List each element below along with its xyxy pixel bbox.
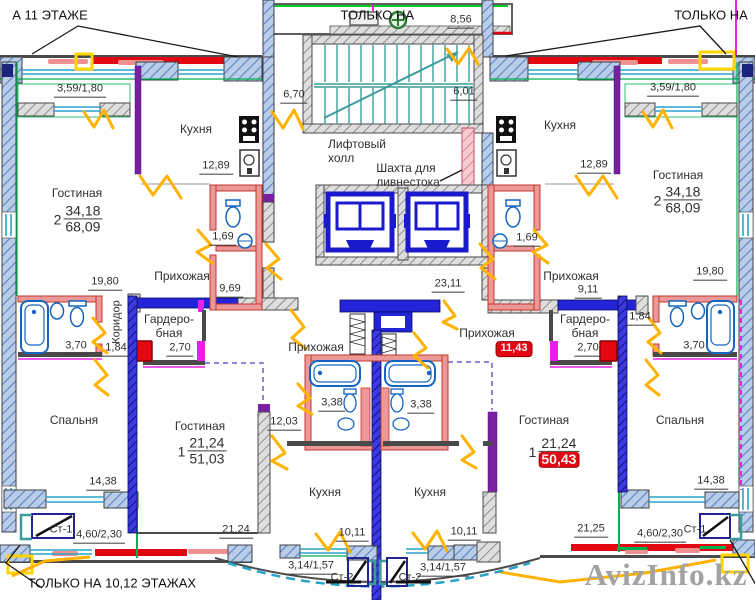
floor-plan: А 11 ЭТАЖЕ ТОЛЬКО НАТОЛЬКО НА 3,59/1,80 …	[0, 0, 755, 600]
toilet-icon	[226, 200, 240, 227]
room-label-wardrobe-l: Гардеро-бная	[144, 313, 194, 341]
sink-icon	[338, 418, 354, 430]
room-label-hall-tl: Прихожая	[154, 270, 210, 284]
sink-icon	[51, 303, 64, 319]
dim-living-br: 21,25	[574, 523, 608, 538]
room-label-hall-bl: Прихожая	[288, 341, 344, 355]
toilet-icon	[69, 301, 86, 327]
room-label-kitchen-bl: Кухня	[309, 486, 341, 500]
leader-shaft	[440, 170, 462, 181]
room-label-living-tr: Гостиная	[653, 169, 703, 183]
area-kitchen-tr: 12,89	[577, 159, 611, 174]
riser-label-st2-r: Ст-2	[399, 572, 422, 585]
room-label-wardrobe-r: Гардеро-бная	[560, 313, 610, 341]
riser-label-st1-l: Ст-1	[50, 524, 73, 537]
room-label-living-tl: Гостиная	[52, 187, 102, 201]
sink-icon	[493, 234, 507, 248]
door-arc	[646, 360, 659, 395]
stove-icon	[239, 116, 259, 143]
duct-box	[600, 341, 617, 361]
apartment-summary-bl: 1 21,2451,03	[178, 435, 227, 466]
bathtub-icon	[385, 361, 435, 386]
area-living-room-tl: 19,80	[88, 276, 122, 291]
area-corridor-r: 1,84	[626, 311, 653, 326]
apartment-summary-tr: 2 34,1868,09	[654, 184, 703, 215]
sink-icon	[393, 418, 409, 430]
balcony-area-br: 3,14/1,57	[417, 562, 469, 577]
door-arc	[140, 176, 181, 198]
area-wc-tl: 1,69	[209, 231, 236, 246]
area-corridor-core: 23,11	[432, 278, 465, 293]
area-hall-br-highlight: 11,43	[496, 341, 533, 357]
wc-top-right	[488, 185, 540, 310]
note-top-right: ТОЛЬКО НАТОЛЬКО НА	[334, 9, 755, 24]
room-label-living-bl: Гостиная	[175, 420, 225, 434]
sink-icon	[238, 234, 252, 248]
room-label-bedroom-l: Спальня	[50, 414, 98, 428]
area-wardrobe-l: 2,70	[166, 342, 193, 357]
note-bottom: ТОЛЬКО НА 10,12 ЭТАЖАХ	[28, 577, 196, 592]
leader-top-left	[32, 26, 238, 57]
drain-shaft	[462, 128, 474, 186]
balcony-area-tr: 3,59/1,80	[647, 82, 699, 97]
bathtub-icon	[21, 301, 48, 353]
core-block	[128, 0, 648, 600]
area-wc-tr: 1,69	[513, 232, 540, 247]
kitchen-sink-icon	[240, 150, 259, 176]
radiator-icon	[742, 64, 753, 77]
loggia-area-r: 4,60/2,30	[634, 528, 686, 543]
room-label-corridor-l: Коридор	[111, 300, 124, 343]
room-label-bedroom-r: Спальня	[656, 414, 704, 428]
sink-icon	[692, 303, 705, 319]
stairs-icon	[314, 45, 473, 124]
door-arc	[95, 360, 108, 395]
area-left-lobby: 6,70	[280, 89, 307, 104]
riser-label-st2-l: Ст-2	[331, 572, 354, 585]
area-bedroom-l: 14,38	[86, 476, 120, 491]
area-hall-bl: 12,03	[267, 416, 301, 431]
apartment-summary-tl: 2 34,1868,09	[54, 203, 103, 234]
balcony-area-tl: 3,59/1,80	[54, 83, 106, 98]
toilet-icon	[344, 389, 356, 412]
area-kitchen-br: 10,11	[448, 526, 481, 541]
elevator-icon	[324, 194, 396, 251]
area-bedroom-r: 14,38	[694, 475, 728, 490]
toilet-icon	[391, 389, 403, 412]
area-wardrobe-r: 2,70	[574, 342, 601, 357]
door-arc	[443, 301, 457, 329]
door-arc	[272, 110, 303, 129]
area-kitchen-tl: 12,89	[199, 160, 233, 175]
area-right-lobby: 6,01	[450, 86, 477, 101]
kitchen-top-right	[496, 116, 516, 176]
drain-shaft-label: Шахта дляливнестока	[376, 162, 440, 190]
riser-label-st1-r: Ст-1	[684, 524, 707, 537]
door-arc	[272, 436, 287, 469]
radiator-icon	[2, 64, 13, 77]
kitchen-top-left	[239, 116, 259, 176]
door-arc	[462, 436, 476, 468]
room-label-kitchen-tl: Кухня	[180, 123, 212, 137]
loggia-area-l: 4,60/2,30	[73, 529, 125, 544]
toilet-icon	[669, 301, 686, 327]
stove-icon	[496, 116, 516, 143]
stairwell	[303, 35, 483, 133]
kitchen-sink-icon	[497, 150, 516, 176]
toilet-icon	[506, 200, 520, 227]
area-bath-bl: 3,38	[318, 397, 345, 412]
area-top-balcony: 8,56	[447, 14, 474, 29]
area-bath-r: 3,70	[680, 340, 707, 355]
dim-living-bl: 21,24	[219, 524, 253, 539]
room-label-hall-tr: Прихожая	[543, 270, 599, 284]
room-label-living-br: Гостиная	[519, 414, 569, 428]
area-bath-br: 3,38	[407, 399, 434, 414]
area-living-room-tr: 19,80	[693, 266, 727, 281]
bathtub-icon	[707, 301, 734, 353]
area-corridor-l: 1,84	[102, 342, 129, 357]
room-label-kitchen-br: Кухня	[414, 486, 446, 500]
apartment-summary-br: 1 21,2450,43	[529, 436, 580, 468]
balcony-area-bl: 3,14/1,57	[285, 560, 337, 575]
leader-top-right	[506, 26, 726, 56]
area-hall-tr: 9,11	[575, 284, 602, 299]
area-bath-l: 3,70	[62, 340, 89, 355]
note-top-left: А 11 ЭТАЖЕ	[12, 9, 88, 24]
bathtub-icon	[310, 361, 360, 386]
room-label-hall-br: Прихожая	[459, 327, 515, 341]
elevator-block	[316, 185, 490, 265]
watermark: AvizInfo.kz	[585, 557, 748, 593]
area-hall-tl: 9,69	[216, 283, 243, 298]
room-label-kitchen-tr: Кухня	[544, 119, 576, 133]
elevator-icon	[404, 194, 470, 251]
door-arc	[576, 176, 617, 198]
area-kitchen-bl: 10,11	[336, 527, 369, 542]
